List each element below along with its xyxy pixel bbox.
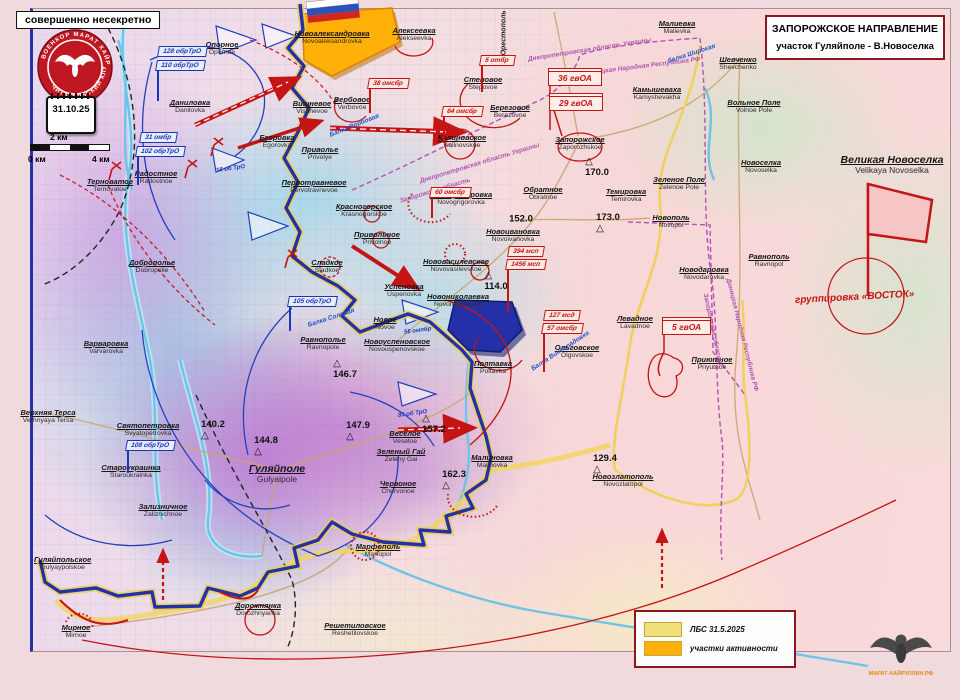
elevation-triangle-icon: △ xyxy=(201,430,225,441)
elevation-value: 144.8 xyxy=(254,435,278,446)
place-name-translit: Vishnevoe xyxy=(293,108,331,115)
map-title-box: ЗАПОРОЖСКОЕ НАПРАВЛЕНИЕ участок Гуляйпол… xyxy=(765,15,945,60)
place-name-ru: Зализничное xyxy=(139,503,188,511)
place-label: Великая НовоселкаVelikaya Novoselka xyxy=(840,155,943,175)
place-name-translit: Berezovoe xyxy=(490,112,530,119)
place-name-ru: Радостное xyxy=(135,170,178,178)
place-name-ru: Малиевка xyxy=(659,20,696,28)
place-name-ru: Дорожнянка xyxy=(235,602,281,610)
unit-flag: 127 мсд xyxy=(543,310,581,321)
place-label: СладкоеSladkoe xyxy=(311,259,342,274)
place-label: ПривольеPrivolye xyxy=(302,146,339,161)
army-box: 36 гвОА xyxy=(548,68,602,86)
place-name-translit: Privolnoe xyxy=(354,239,400,246)
unit-flag-pole xyxy=(127,451,129,473)
place-name-translit: Stepovoe xyxy=(464,84,502,91)
place-name-translit: Sladkoe xyxy=(311,267,342,274)
place-label: ШевченкоShevchenko xyxy=(719,56,756,71)
map-title-line1: ЗАПОРОЖСКОЕ НАПРАВЛЕНИЕ xyxy=(771,23,939,35)
small-unit-label: 16 об ТрО xyxy=(216,164,246,174)
elevation-marker: 162.3△ xyxy=(442,469,466,491)
legend-swatch-lbs xyxy=(644,622,682,637)
elevation-marker: 129.4△ xyxy=(593,453,617,475)
place-label: МирноеMirnoe xyxy=(62,624,91,639)
place-name-translit: Novopol xyxy=(652,222,689,229)
place-label: НовоуспеновскоеNovouspenovskoe xyxy=(364,338,430,353)
place-label: ЕгоровкаEgorovka xyxy=(259,134,294,149)
elevation-triangle-icon: △ xyxy=(346,431,370,442)
place-name-ru: Успеновка xyxy=(384,283,423,291)
place-name-translit: Poltavka xyxy=(474,368,512,375)
owl-icon xyxy=(866,626,936,668)
place-name-ru: Левадное xyxy=(617,315,653,323)
place-name-translit: Novouspenovskoe xyxy=(364,346,430,353)
place-name-translit: Novozlatopol xyxy=(592,481,653,488)
elevation-value: 129.4 xyxy=(593,453,617,464)
place-name-translit: Egorovka xyxy=(259,142,294,149)
unit-flag-pole xyxy=(481,66,483,92)
place-name-translit: Dorozhnyanka xyxy=(235,610,281,617)
place-label: АлексеевкаAlekseevka xyxy=(392,27,435,42)
place-name-translit: Mirnoe xyxy=(62,632,91,639)
unit-flag: 102 обрТрО xyxy=(135,146,186,157)
classification-banner: совершенно несекретно xyxy=(16,11,160,29)
place-name-translit: Temirovka xyxy=(606,196,646,203)
unit-flag-pole xyxy=(431,198,433,218)
place-name-translit: Priyutnoe xyxy=(692,364,733,371)
place-label: НовоалександровкаNovoaleksandrovka xyxy=(294,30,369,45)
elevation-marker: △157.2 xyxy=(422,413,446,435)
place-label: БерезовоеBerezovoe xyxy=(490,104,530,119)
place-label: ЛевадноеLavadnoe xyxy=(617,315,653,330)
place-name-ru: Мирное xyxy=(62,624,91,632)
unit-flag-pole xyxy=(289,307,291,331)
place-name-translit: Privolye xyxy=(302,154,339,161)
elevation-triangle-icon: △ xyxy=(333,358,357,369)
place-name-ru: Егоровка xyxy=(259,134,294,142)
place-name-translit: Novoivanovka xyxy=(486,236,540,243)
place-name-translit: Malievka xyxy=(659,28,696,35)
unit-flag-pole xyxy=(443,117,445,143)
unit-flag: 5 отбр xyxy=(479,55,515,66)
place-name-ru: Красногорское xyxy=(336,203,392,211)
place-label: УспеновкаUspenovka xyxy=(384,283,423,298)
elevation-value: 162.3 xyxy=(442,469,466,480)
place-label: ПриютноеPriyutnoe xyxy=(692,356,733,371)
owl-caption: МАРАТ-ХАЙРУЛЛИН.РФ xyxy=(866,671,936,677)
place-label: СтароукраинкаStaroukrainka xyxy=(101,464,160,479)
place-name-translit: Krasnogorskoe xyxy=(336,211,392,218)
elevation-value: 146.7 xyxy=(333,369,357,380)
elevation-value: 157.2 xyxy=(422,424,446,435)
place-name-translit: Novoselka xyxy=(741,167,781,174)
unit-flag: 108 обрТрО xyxy=(125,440,176,451)
place-name-ru: Обратное xyxy=(523,186,562,194)
place-name-ru: Даниловка xyxy=(170,99,210,107)
place-name-ru: Шевченко xyxy=(719,56,756,64)
place-name-ru: Новоселка xyxy=(741,159,781,167)
place-label: ВербовоеVerbovoe xyxy=(334,96,371,111)
unit-flag-pole xyxy=(137,157,139,185)
place-label: ТемировкаTemirovka xyxy=(606,188,646,203)
place-label: ДобропольеDobropolie xyxy=(129,259,175,274)
place-name-ru: Вольное Поле xyxy=(727,99,780,107)
place-label: ВишневоеVishnevoe xyxy=(293,100,331,115)
boundary-or-river-label: Балка Вербовая xyxy=(329,113,380,139)
place-label: Зеленый ГайZeleny Gai xyxy=(377,448,426,463)
place-name-translit: Volnoe Pole xyxy=(727,107,780,114)
place-label: ТерноватоеTernovatoe xyxy=(87,178,133,193)
place-label: НовоивановкаNovoivanovka xyxy=(486,228,540,243)
elevation-value: 114.0 xyxy=(484,281,507,292)
place-label: Вольное ПолеVolnoe Pole xyxy=(727,99,780,114)
place-name-translit: Radostnoe xyxy=(135,178,178,185)
unit-flag-pole xyxy=(507,270,509,312)
elevation-triangle-icon: △ xyxy=(593,464,617,475)
unit-flag: 38 омсбр xyxy=(367,78,410,89)
legend-row-activity: участки активности xyxy=(644,641,786,656)
map-title-line2: участок Гуляйполе - В.Новоселка xyxy=(771,41,939,52)
place-name-ru: Сладкое xyxy=(311,259,342,267)
elevation-value: 173.0 xyxy=(596,212,620,223)
place-name-translit: Marfopol xyxy=(356,551,401,558)
place-name-translit: Alekseevka xyxy=(392,35,435,42)
place-name-ru: Новополь xyxy=(652,214,689,222)
place-label: ОбратноеObratnoe xyxy=(523,186,562,201)
place-label: ПолтавкаPoltavka xyxy=(474,360,512,375)
place-label: РавнопольRavnopol xyxy=(748,253,789,268)
elevation-marker: △146.7 xyxy=(333,358,357,380)
place-label: НовозлатопольNovozlatopol xyxy=(592,473,653,488)
place-label: СтеповоеStepovoe xyxy=(464,76,502,91)
map-legend: ЛБС 31.5.2025 участки активности xyxy=(634,610,796,668)
small-unit-label: 56 омпбр xyxy=(404,326,432,336)
place-name-ru: Камышеваха xyxy=(633,86,681,94)
place-label: ДорожнянкаDorozhnyanka xyxy=(235,602,281,617)
boundary-or-river-label: Донецкая Народная Республика РФ xyxy=(725,278,760,392)
scale-label-4km: 4 км xyxy=(92,154,110,164)
place-name-ru: Гуляйпольское xyxy=(34,556,91,564)
place-label: ПервотравневоеPervotravnevoe xyxy=(282,179,347,194)
elevation-value: 170.0 xyxy=(585,167,609,178)
map-canvas: НовоалександровкаNovoaleksandrovkaАлексе… xyxy=(0,0,960,700)
place-name-translit: Kalinovskoe xyxy=(438,142,486,149)
legend-row-lbs: ЛБС 31.5.2025 xyxy=(644,622,786,637)
date-calendar: 31.10.25 xyxy=(46,96,96,134)
place-name-translit: Ravnopol xyxy=(748,261,789,268)
place-name-ru: Темировка xyxy=(606,188,646,196)
owl-emblem: МАРАТ-ХАЙРУЛЛИН.РФ xyxy=(866,626,936,677)
place-name-ru: Привольное xyxy=(354,231,400,239)
place-name-translit: Zaliznichnoe xyxy=(139,511,188,518)
elevation-marker: 152.0 xyxy=(509,214,533,225)
elevation-value: 140.2 xyxy=(201,419,225,430)
place-label: ПривольноеPrivolnoe xyxy=(354,231,400,246)
place-name-translit: Novogrigorovka xyxy=(430,199,492,206)
place-name-ru: Березовое xyxy=(490,104,530,112)
scale-label-2km: 2 км xyxy=(50,132,68,142)
place-name-translit: Novonikolaevka xyxy=(427,301,489,308)
place-name-ru: Малиновка xyxy=(471,454,513,462)
place-name-ru: Приютное xyxy=(692,356,733,364)
army-box: 29 гвОА xyxy=(549,93,603,111)
place-name-ru: Новоуспеновское xyxy=(364,338,430,346)
place-name-translit: Pervotravnevoe xyxy=(282,187,347,194)
army-box: 5 гвОА xyxy=(662,317,711,335)
place-name-translit: Varvarovka xyxy=(84,348,129,355)
place-name-translit: Verhnyaya Tersa xyxy=(21,417,76,424)
place-name-ru: Веселое xyxy=(389,430,420,438)
place-name-ru: Равнополье xyxy=(300,336,345,344)
place-name-translit: Staroukrainka xyxy=(101,472,160,479)
place-label: НовопольNovopol xyxy=(652,214,689,229)
place-name-ru: Новониколаевка xyxy=(427,293,489,301)
place-name-ru: Варваровка xyxy=(84,340,129,348)
place-name-ru: Первотравневое xyxy=(282,179,347,187)
legend-swatch-activity xyxy=(644,641,682,656)
unit-flag-pole xyxy=(157,71,159,101)
place-name-translit: Veseloe xyxy=(389,438,420,445)
labels-layer: НовоалександровкаNovoaleksandrovkaАлексе… xyxy=(0,0,960,700)
elevation-triangle-icon: △ xyxy=(442,480,466,491)
boundary-or-river-label: Днепропетровская область Украины xyxy=(527,37,651,63)
place-label: МалиевкаMalievka xyxy=(659,20,696,35)
place-name-ru: Опорное xyxy=(206,41,239,49)
place-name-ru: Новоивановка xyxy=(486,228,540,236)
place-name-ru: Терноватое xyxy=(87,178,133,186)
unit-flag: 31 омбр xyxy=(139,132,178,143)
place-label: ЗапорожскоеZaporozhskoe xyxy=(555,136,604,151)
place-name-ru: Святопетровка xyxy=(117,422,180,430)
scale-bar-rule xyxy=(30,144,110,151)
place-name-ru: Зеленое Поле xyxy=(653,176,705,184)
place-name-ru: Староукраинка xyxy=(101,464,160,472)
place-label: КамышевахаKamyshevakha xyxy=(633,86,681,101)
place-name-ru: Доброполье xyxy=(129,259,175,267)
unit-flag-pole xyxy=(369,89,371,113)
place-name-ru: Вишневое xyxy=(293,100,331,108)
place-name-translit: Danilovka xyxy=(170,107,210,114)
place-label: Верхняя ТерсаVerhnyaya Tersa xyxy=(21,409,76,424)
place-name-ru: Новодаровка xyxy=(679,266,729,274)
elevation-triangle-icon: △ xyxy=(254,446,278,457)
place-name-translit: Novodarovka xyxy=(679,274,729,281)
place-name-ru: Калиновское xyxy=(438,134,486,142)
map-date: 31.10.25 xyxy=(48,104,94,132)
unit-flag: 60 омсбр xyxy=(429,187,472,198)
place-name-translit: Malinovka xyxy=(471,462,513,469)
place-name-translit: Dobropolie xyxy=(129,267,175,274)
place-name-translit: Zelenoe Pole xyxy=(653,184,705,191)
place-label: ГуляйпольскоеGulyaypolskoe xyxy=(34,556,91,571)
place-name-translit: Velikaya Novoselka xyxy=(840,166,943,175)
place-name-translit: Novoe xyxy=(373,324,396,331)
elevation-triangle-icon: △ xyxy=(585,156,609,167)
legend-label-activity: участки активности xyxy=(690,644,778,653)
place-name-translit: Verbovoe xyxy=(334,104,371,111)
place-label: ВарваровкаVarvarovka xyxy=(84,340,129,355)
unit-flag: 394 мсп xyxy=(507,246,545,257)
place-name-translit: Lavadnoe xyxy=(617,323,653,330)
place-name-ru: Нововасилевское xyxy=(423,258,489,266)
place-name-ru: Зеленый Гай xyxy=(377,448,426,456)
place-name-ru: Новоалександровка xyxy=(294,30,369,38)
place-label: НововасилевскоеNovovasilevskoe xyxy=(423,258,489,273)
place-name-translit: Kamyshevakha xyxy=(633,94,681,101)
place-label: ЧервоноеChervonoe xyxy=(380,480,416,495)
place-label: Зеленое ПолеZelenoe Pole xyxy=(653,176,705,191)
place-label: МарфопольMarfopol xyxy=(356,543,401,558)
unit-flag: 105 обрТрО xyxy=(287,296,338,307)
place-name-ru: Запорожское xyxy=(555,136,604,144)
place-label: НоводаровкаNovodarovka xyxy=(679,266,729,281)
unit-flag: 110 обрТрО xyxy=(155,60,205,71)
boundary-or-river-label: Балка Соленая xyxy=(307,307,356,329)
place-name-translit: Reshetilovskoe xyxy=(324,630,385,637)
vostok-grouping-label: группировка «ВОСТОК» xyxy=(795,289,915,306)
place-label: ЗализничноеZaliznichnoe xyxy=(139,503,188,518)
place-name-ru: Приволье xyxy=(302,146,339,154)
unit-flag: 64 омсбр xyxy=(441,106,484,117)
elevation-marker: 147.9△ xyxy=(346,420,370,442)
place-label: КрасногорскоеKrasnogorskoe xyxy=(336,203,392,218)
place-label: СвятопетровкаSvyatopetrovka xyxy=(117,422,180,437)
place-name-ru: Верхняя Терса xyxy=(21,409,76,417)
place-name-ru: Алексеевка xyxy=(392,27,435,35)
place-name-translit: Shevchenko xyxy=(719,64,756,71)
elevation-value: 152.0 xyxy=(509,214,533,225)
elevation-value: 147.9 xyxy=(346,420,370,431)
place-name-translit: Ravnopole xyxy=(300,344,345,351)
elevation-marker: △170.0 xyxy=(585,156,609,178)
place-name-translit: Obratnoe xyxy=(523,194,562,201)
place-name-ru: Новое xyxy=(373,316,396,324)
place-name-ru: Марфополь xyxy=(356,543,401,551)
elevation-marker: △114.0 xyxy=(484,270,507,292)
place-label: ГуляйполеGulyaipole xyxy=(249,464,305,484)
place-name-translit: Ternovatoe xyxy=(87,186,133,193)
place-name-ru: Степовое xyxy=(464,76,502,84)
place-name-ru: Червоное xyxy=(380,480,416,488)
scale-label-0km: 0 км xyxy=(28,154,46,164)
legend-label-lbs: ЛБС 31.5.2025 xyxy=(690,625,745,634)
unit-flag-pole xyxy=(543,334,545,372)
elevation-marker: 144.8△ xyxy=(254,435,278,457)
place-label: РавнопольеRavnopole xyxy=(300,336,345,351)
unit-flag: 57 омсбр xyxy=(541,323,584,334)
place-label: НовоселкаNovoselka xyxy=(741,159,781,174)
elevation-marker: 140.2△ xyxy=(201,419,225,441)
place-label: ОпорноеOpornoe xyxy=(206,41,239,56)
place-name-translit: Gulyaypolskoe xyxy=(34,564,91,571)
place-name-translit: Zeleny Gai xyxy=(377,456,426,463)
place-name-translit: Uspenovka xyxy=(384,291,423,298)
elevation-marker: 173.0△ xyxy=(596,212,620,234)
elevation-triangle-icon: △ xyxy=(596,223,620,234)
place-name-translit: Gulyaipole xyxy=(249,475,305,484)
place-name-translit: Svyatopetrovka xyxy=(117,430,180,437)
unit-flag: 1456 мсп xyxy=(505,259,547,270)
place-name-ru: Равнополь xyxy=(748,253,789,261)
place-name-ru: Полтавка xyxy=(474,360,512,368)
place-label: МалиновкаMalinovka xyxy=(471,454,513,469)
place-name-translit: Zaporozhskoe xyxy=(555,144,604,151)
place-name-translit: Novovasilevskoe xyxy=(423,266,489,273)
unit-flag: 128 обрТрО xyxy=(157,46,208,57)
place-label: НовоеNovoe xyxy=(373,316,396,331)
place-name-translit: Opornoe xyxy=(206,49,239,56)
place-label: ВеселоеVeseloe xyxy=(389,430,420,445)
calendar-rings xyxy=(51,93,91,99)
place-label: РешетиловскоеReshetilovskoe xyxy=(324,622,385,637)
place-name-ru: Решетиловское xyxy=(324,622,385,630)
elevation-triangle-icon: △ xyxy=(484,270,507,281)
place-label: ДаниловкаDanilovka xyxy=(170,99,210,114)
place-label: РадостноеRadostnoe xyxy=(135,170,178,185)
place-label: КалиновскоеKalinovskoe xyxy=(438,134,486,149)
place-name-translit: Chervonoe xyxy=(380,488,416,495)
place-name-ru: Вербовое xyxy=(334,96,371,104)
place-label: НовониколаевкаNovonikolaevka xyxy=(427,293,489,308)
place-name-translit: Novoaleksandrovka xyxy=(294,38,369,45)
